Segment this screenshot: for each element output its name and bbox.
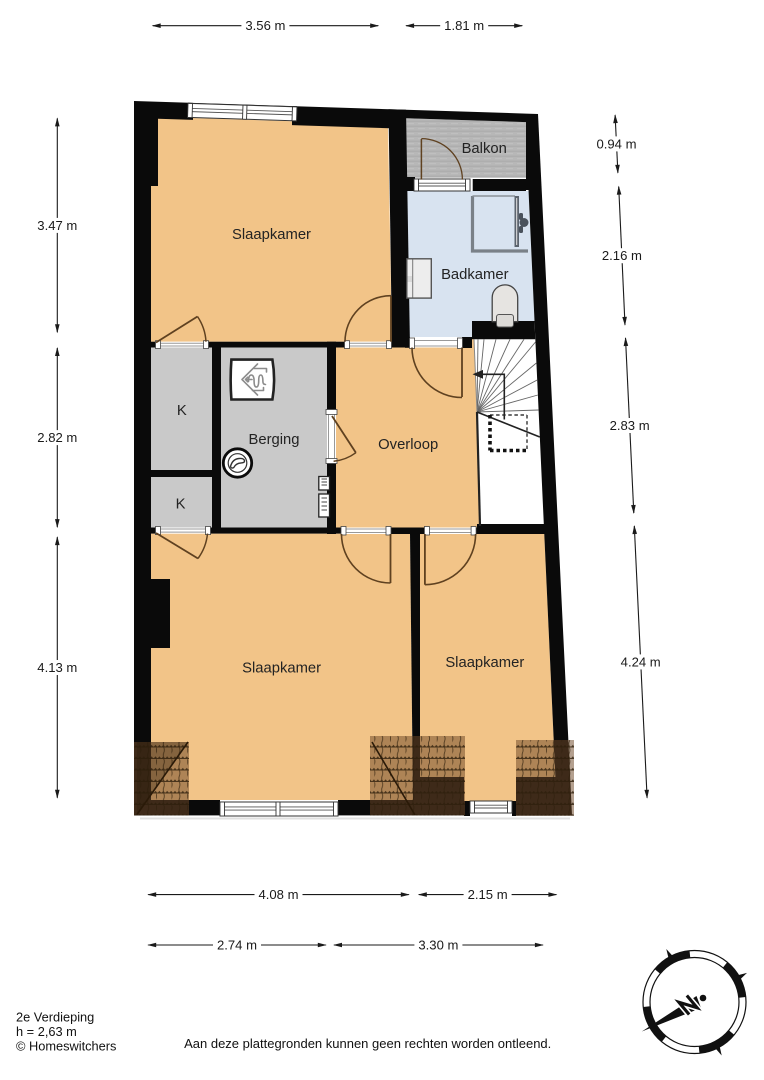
svg-text:2.83 m: 2.83 m [610,418,650,433]
svg-text:Berging: Berging [248,432,299,448]
svg-text:Overloop: Overloop [378,437,438,453]
svg-text:1.81 m: 1.81 m [444,18,484,33]
svg-text:K: K [177,403,187,419]
svg-text:Badkamer: Badkamer [441,267,509,283]
svg-text:Slaapkamer: Slaapkamer [232,227,311,243]
svg-text:© Homeswitchers: © Homeswitchers [16,1038,116,1053]
svg-text:Slaapkamer: Slaapkamer [445,655,524,671]
svg-text:Balkon: Balkon [462,141,507,157]
svg-text:K: K [176,497,186,513]
svg-text:3.30 m: 3.30 m [418,937,458,952]
svg-text:h = 2,63 m: h = 2,63 m [16,1024,77,1039]
svg-text:Slaapkamer: Slaapkamer [242,661,321,677]
svg-text:4.24 m: 4.24 m [621,654,661,669]
svg-text:Aan deze plattegronden kunnen: Aan deze plattegronden kunnen geen recht… [184,1036,551,1051]
svg-text:0.94 m: 0.94 m [596,136,636,151]
svg-text:2e Verdieping: 2e Verdieping [16,1009,94,1024]
svg-text:4.08 m: 4.08 m [258,887,298,902]
svg-text:4.13 m: 4.13 m [37,660,77,675]
svg-text:3.56 m: 3.56 m [245,18,285,33]
svg-text:3.47 m: 3.47 m [37,218,77,233]
svg-text:2.16 m: 2.16 m [602,248,642,263]
svg-text:2.82 m: 2.82 m [37,430,77,445]
svg-text:2.74 m: 2.74 m [217,937,257,952]
svg-text:2.15 m: 2.15 m [468,887,508,902]
